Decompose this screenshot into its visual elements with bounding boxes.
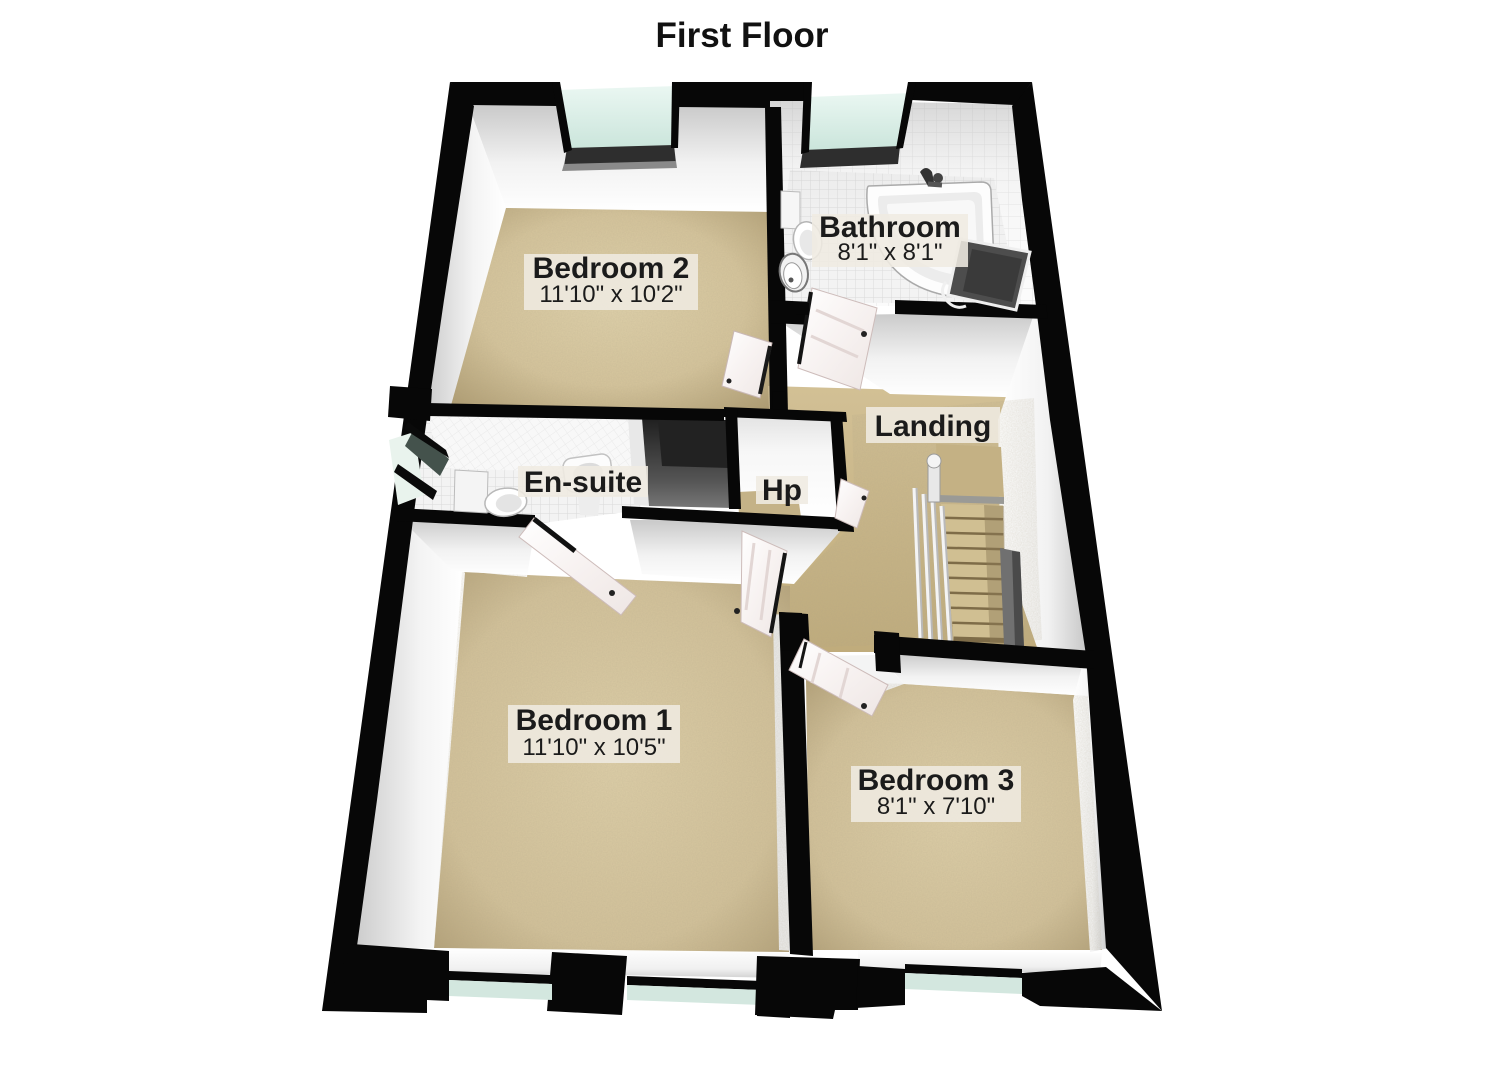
svg-text:8'1" x 7'10": 8'1" x 7'10" xyxy=(877,793,995,820)
svg-text:First Floor: First Floor xyxy=(655,16,828,55)
svg-text:8'1" x 8'1": 8'1" x 8'1" xyxy=(838,239,943,266)
svg-text:11'10" x 10'2": 11'10" x 10'2" xyxy=(539,281,682,308)
svg-text:Landing: Landing xyxy=(875,410,992,443)
svg-text:En-suite: En-suite xyxy=(524,466,642,499)
svg-text:Bedroom 1: Bedroom 1 xyxy=(516,704,673,737)
svg-text:Hp: Hp xyxy=(762,474,802,507)
svg-text:11'10" x 10'5": 11'10" x 10'5" xyxy=(522,734,665,761)
